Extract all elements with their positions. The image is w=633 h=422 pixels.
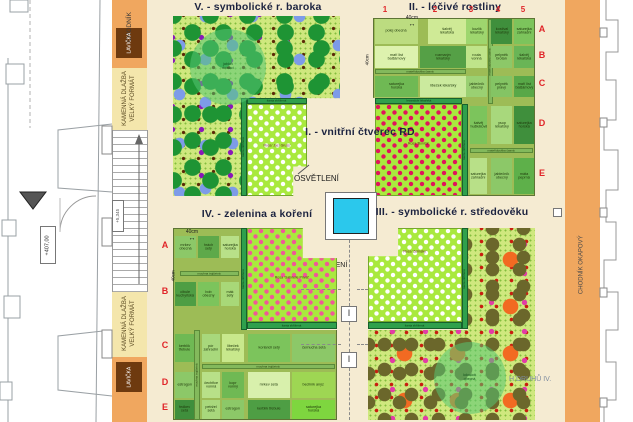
planting-cell: čechřice vonná — [202, 372, 220, 398]
planting-cell-label: mrkev setá — [260, 383, 278, 387]
bench-label-bottom-label: LAVIČKA — [126, 367, 132, 388]
planting-cell-label: pelyněk pravý — [495, 83, 508, 91]
planting-cell: kostival lékařský — [491, 19, 512, 44]
planting-cell: koriandr setý — [248, 334, 290, 362]
dim-5345-label: +5,345 — [115, 209, 121, 223]
stone-paving-label-top: KAMENNÁ DLAŽBA VELKÝ FORMÁT — [112, 66, 147, 130]
col-number-1: 1 — [380, 5, 390, 14]
bench-label-top-label: LAVIČKA — [126, 33, 132, 54]
dim-arrow-ii-top: ↔ — [402, 21, 422, 28]
rose-bed-label: Rosa 'Gabrielle Privat' — [266, 276, 317, 279]
hedge-strip-label: šanta zkřížená — [243, 137, 246, 157]
planting-cell-label: černucha setá — [302, 346, 325, 350]
hedge-strip: mateřídouška časná — [375, 69, 466, 74]
hedge-strip: mateřídouška časná — [470, 148, 533, 153]
planting-cell-label: libeček lékařský — [226, 344, 240, 352]
row-letter-ii-a: A — [537, 24, 547, 34]
hedge-strip: šanta zkřížená — [462, 104, 468, 196]
title-quadrant-v: V. - symbolické r. baroka — [178, 1, 338, 13]
col-number-5: 5 — [518, 5, 528, 14]
planting-cell: máta peprná — [514, 158, 534, 194]
planting-cell: bob obecný — [198, 282, 219, 306]
planting-cell: saturejka zahradní — [470, 158, 487, 194]
col-number-2: 2 — [430, 5, 440, 14]
row-letter-iv-d: D — [160, 377, 170, 387]
eaves-sidewalk-label: CHODNÍK OKAPOVÝ — [565, 215, 600, 315]
row-letter-iv-a: A — [160, 240, 170, 250]
title-quadrant-i: I. - vnitřní čtverec RD — [296, 126, 424, 138]
col-number-3: 3 — [466, 5, 476, 14]
planting-cell-label: ysop lékařský — [495, 121, 509, 129]
planting-cell-label: mrkev obecná — [179, 243, 192, 251]
hedge-strip-label: mateřídouška časná — [407, 70, 434, 73]
planting-cell: saturejka horská — [221, 236, 239, 258]
walkway-right — [565, 0, 600, 422]
hedge-strip: šanta zkřížená — [241, 228, 247, 330]
dim-40cm-iv-left: 40cm — [168, 260, 180, 292]
planting-cell-label: čechřice vonná — [204, 381, 218, 389]
dashed-line-h — [357, 289, 368, 290]
hedge-strip-label: šanta zkřížená — [282, 324, 302, 327]
hedge-strip: šanta zkřížená — [247, 322, 337, 329]
planting-cell-label: estragon — [177, 383, 191, 387]
tree-crown-label: kdouloň obecná — [464, 374, 477, 382]
tree-crown: jabloň domácí — [190, 29, 266, 105]
planting-cell-label: petržel setá — [205, 406, 216, 414]
dim-40cm-ii-left-label: 40cm — [365, 54, 371, 65]
hedge-strip-label: šanta zkřížená — [464, 140, 467, 160]
bench-label-bottom: LAVIČKA — [116, 362, 142, 392]
dim-5345: +5,345 — [112, 200, 124, 232]
planting-cell-label: rozmarýn lékařský — [429, 53, 458, 61]
planting-cell: estragon — [222, 400, 244, 419]
planting-cell-label: koriandr setý — [258, 346, 279, 350]
row-letter-iv-e: E — [160, 402, 170, 412]
planting-cell-label: šalvěj lékařská — [517, 53, 531, 61]
planting-cell-label: šalvěj lékařská — [435, 28, 459, 36]
rose-bed-label: Rosa 'Bonica' — [394, 142, 443, 145]
planting-cell-label: hrách setý — [202, 243, 215, 251]
planting-cell-label: estragon — [226, 408, 240, 412]
planting-cell: saturejka horská — [514, 106, 534, 144]
hedge-strip: šanta zkřížená — [247, 98, 307, 104]
dashed-line-h — [357, 344, 368, 345]
planting-cell: mák setý — [221, 282, 239, 306]
row-letter-iv-c: C — [160, 340, 170, 350]
hedge-strip-label: levandule lékařská — [406, 100, 431, 103]
planting-cell-label: maří list balšámový — [515, 83, 533, 91]
dashed-line-v — [349, 322, 350, 352]
planting-cell: šalvěj muškátová — [470, 106, 487, 144]
dashed-line-v — [349, 368, 350, 420]
hedge-strip-label: šanta zkřížená — [243, 269, 246, 289]
planting-cell: libeček lékařský — [222, 334, 244, 362]
planting-cell: jablečník obecný — [466, 76, 487, 97]
planting-cell-label: saturejka zahradní — [516, 28, 531, 36]
col-number-4: 4 — [493, 5, 503, 14]
planting-cell-label: maří list balšámový — [383, 53, 410, 61]
planting-cell: kopr vonný — [222, 372, 244, 398]
planting-cell-label: máta peprná — [518, 172, 530, 180]
planting-cell: rozmarýn lékařský — [420, 46, 466, 68]
level-mark: +407,00 — [40, 226, 56, 264]
bench-label-top: LAVIČKA — [116, 28, 142, 58]
planting-cell: kozlík lékařský — [466, 19, 487, 44]
planting-cell: kerblík třebule — [248, 400, 290, 419]
planting-cell-label: saturejka zahradní — [471, 172, 486, 180]
marker-square — [553, 208, 562, 217]
planting-cell-label: jablečník obecný — [469, 83, 484, 91]
building-right — [600, 0, 633, 422]
planting-cell-label: libeček lékařský — [430, 85, 456, 89]
planting-cell-label: mák setý — [224, 290, 235, 298]
planting-cell-label: saturejka horská — [383, 83, 410, 91]
planting-cell: maří list balšámový — [375, 46, 418, 68]
planting-cell: pelyněk brotan — [491, 46, 512, 68]
stone-paving-label-bottom-label: KAMENNÁ DLAŽBA VELKÝ FORMÁT — [122, 296, 137, 351]
planting-cell: saturejka horská — [292, 400, 335, 419]
hedge-strip: šanta zkřížená — [462, 228, 468, 329]
level-mark-label: +407,00 — [45, 235, 52, 255]
planting-cell: pelyněk pravý — [491, 76, 512, 97]
dim-40cm-ii-left: 40cm — [362, 44, 374, 76]
planting-cell-label: kozlík lékařský — [470, 28, 484, 36]
planting-cell: petržel setá — [202, 400, 220, 419]
hedge-strip-label: mochna trojčetná — [196, 363, 199, 386]
planting-cell: kerblík třebule — [175, 334, 194, 362]
planting-cell-label: bedrník anýz — [303, 383, 324, 387]
planting-cell: maří list balšámový — [514, 76, 534, 97]
rose-bed-label: Rosa 'Jací Gruss' — [260, 144, 294, 147]
planting-cell-label: pelyněk brotan — [495, 53, 508, 61]
hedge-strip-label: mateřídouška časná — [488, 149, 515, 152]
dashed-line-v — [349, 240, 350, 306]
planting-cell-label: šalvěj muškátová — [470, 121, 487, 129]
hedge-strip-label: mochna trojčetná — [198, 272, 221, 275]
planting-cell-label: routa vonná — [470, 53, 483, 61]
planting-cell: mrkev setá — [248, 372, 290, 398]
hedge-strip: mochna trojčetná — [180, 271, 239, 276]
title-quadrant-iii: III. - symbolické r. středověku — [366, 206, 538, 218]
dashed-line-h — [301, 344, 341, 345]
planting-cell: černucha setá — [292, 334, 335, 362]
planting-cell: ysop lékařský — [491, 106, 512, 144]
planting-cell: šalvěj lékařská — [428, 19, 466, 44]
planting-cell-label: kostival lékařský — [495, 28, 509, 36]
title-quadrant-ii: II. - léčivé rostliny — [375, 1, 535, 13]
planting-cell: jablečník obecný — [491, 158, 512, 194]
fixture-glyph-2: I — [341, 354, 357, 364]
planting-cell-label: polej obecná — [386, 30, 407, 34]
tree-crown: kdouloň obecná — [434, 342, 506, 414]
row-letter-ii-c: C — [537, 78, 547, 88]
eaves-sidewalk-label-label: CHODNÍK OKAPOVÝ — [579, 236, 587, 295]
hedge-strip-label: šanta zkřížená — [267, 100, 287, 103]
stone-paving-label-top-label: KAMENNÁ DLAŽBA VELKÝ FORMÁT — [122, 71, 137, 126]
planting-cell: estragon — [175, 372, 194, 398]
planting-cell-label: bob obecný — [202, 290, 215, 298]
planting-cell-label: pór zahradní — [204, 344, 218, 352]
planting-cell-label: saturejka horská — [516, 121, 531, 129]
dashed-line-h — [301, 289, 341, 290]
planting-cell-label: kerblík třebule — [179, 344, 191, 352]
row-letter-ii-e: E — [537, 168, 547, 178]
fixture-glyph-1: I — [341, 308, 357, 318]
planting-cell: routa vonná — [466, 46, 487, 68]
species-list-label: H DRUHŮ IV. — [509, 376, 551, 383]
title-quadrant-iv: IV. - zelenina a koření — [177, 208, 337, 220]
tree-crown-label: jabloň domácí — [222, 63, 234, 71]
planting-cell-label: kopr vonný — [226, 381, 240, 389]
planting-cell-label: saturejka horská — [222, 243, 237, 251]
planting-cell-label: ředkev setá — [179, 406, 191, 414]
rose-bed: Rosa 'Bonica' — [375, 104, 462, 196]
planting-cell: libeček lékařský — [420, 76, 466, 97]
planting-cell-label: jablečník obecný — [494, 172, 509, 180]
stone-paving-label-bottom: KAMENNÁ DLAŽBA VELKÝ FORMÁT — [112, 290, 147, 357]
planting-cell-label: saturejka horská — [300, 406, 327, 414]
water-basin — [333, 198, 369, 234]
hedge-strip-label: mochna trojčetná — [257, 365, 280, 368]
planting-cell: saturejka horská — [375, 76, 418, 97]
lighting-label-1: OSVĚTLENÍ — [294, 174, 339, 183]
hedge-strip: mochna trojčetná — [202, 364, 335, 369]
hedge-strip: mochna trojčetná — [194, 330, 200, 420]
hedge-strip: šanta zkřížená — [241, 98, 247, 196]
hedge-strip: šanta zkřížená — [368, 322, 462, 329]
hedge-strip-label: šanta zkřížená — [464, 269, 467, 289]
planting-cell: bedrník anýz — [292, 372, 335, 398]
row-letter-ii-d: D — [537, 118, 547, 128]
garden-plan: šanta zkříženášanta zkříženálevandule lé… — [0, 0, 633, 422]
planting-cell: šalvěj lékařská — [514, 46, 534, 68]
hedge-strip-label: šanta zkřížená — [405, 324, 425, 327]
planting-cell: ředkev setá — [175, 400, 194, 419]
dim-arrow-iv-top: ↔ — [182, 235, 202, 242]
planting-cell: saturejka zahradní — [514, 19, 534, 44]
row-letter-ii-b: B — [537, 50, 547, 60]
planting-cell-label: kerblík třebule — [257, 408, 280, 412]
dim-40cm-iv-left-label: 40cm — [171, 270, 177, 281]
planting-cell: pór zahradní — [202, 334, 220, 362]
